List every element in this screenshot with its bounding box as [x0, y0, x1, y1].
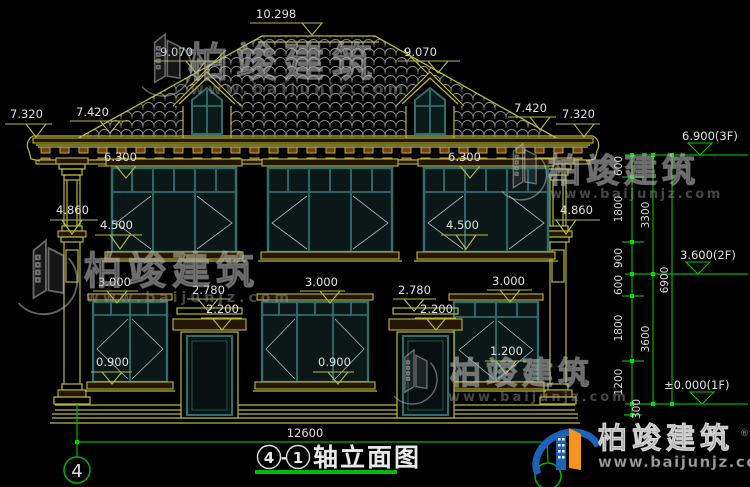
cad-canvas: 10.298 9.070 9.070 7.420 7.320 7.420 7.3… — [0, 0, 750, 487]
watermark-brand: 柏竣建筑 — [548, 151, 700, 190]
logo-tower-orange — [569, 428, 581, 470]
logo-site-text: www.baijunjz.com — [598, 453, 750, 471]
window-1f-center — [253, 294, 377, 391]
dim-sill-2: 0.900 — [318, 355, 351, 369]
window-2f-center — [258, 159, 402, 261]
watermark-brand: 柏竣建筑 — [84, 249, 260, 293]
dim-total-width: 12600 — [287, 426, 324, 440]
title-axis-end: 1 — [293, 449, 303, 467]
plinth — [50, 405, 580, 423]
watermark-top: 柏竣建筑 www.baijunjz.com — [142, 34, 407, 98]
dim-sill-1: 0.900 — [96, 355, 129, 369]
logo-swoosh — [536, 432, 598, 474]
watermark-left: 柏竣建筑 www.baijunjz.com — [19, 241, 294, 315]
dim-eave-in-right: 7.420 — [514, 101, 547, 115]
watermark-brand: 柏竣建筑 — [450, 356, 594, 392]
chain-600-b: 600 — [613, 275, 625, 295]
chain-3300: 3300 — [640, 202, 652, 229]
title-text: 轴立面图 — [313, 443, 421, 472]
logo-brand-text: 柏竣建筑 — [598, 421, 734, 455]
dim-eave-in-left: 7.420 — [76, 105, 109, 119]
level-2f: 3.600(2F) — [680, 248, 736, 262]
title-axis-start: 4 — [264, 449, 274, 467]
chain-6900: 6900 — [659, 267, 671, 294]
door-left — [173, 308, 246, 418]
dim-cap-left: 4.860 — [56, 203, 89, 217]
chain-900: 900 — [613, 248, 625, 268]
dim-eave-out-left: 7.320 — [10, 107, 43, 121]
dim-door-leaf-2: 2.200 — [420, 302, 453, 316]
chain-3600: 3600 — [640, 326, 652, 353]
dim-w1-top-2: 3.000 — [305, 275, 338, 289]
watermark-logo-icon — [142, 34, 191, 96]
level-1f: ±0.000(1F) — [664, 378, 729, 392]
logo-registered-mark: ® — [740, 429, 749, 439]
elevation-drawing: 10.298 9.070 9.070 7.420 7.320 7.420 7.3… — [0, 0, 750, 487]
dim-eave-out-right: 7.320 — [562, 107, 595, 121]
window-1f-left — [85, 294, 175, 391]
watermark-site: www.baijunjz.com — [550, 187, 723, 202]
axis-bubble-label: 4 — [71, 461, 82, 482]
chain-300: 300 — [631, 399, 643, 419]
dim-w1-top-3: 3.000 — [492, 274, 525, 288]
dim-w2-top-right: 6.300 — [448, 150, 481, 164]
title-underline — [255, 470, 397, 474]
dim-w2-bot-right: 4.500 — [446, 218, 479, 232]
dim-door-top-2: 2.780 — [398, 283, 431, 297]
dim-slope-right: 9.070 — [404, 45, 437, 59]
watermark-site: www.baijunjz.com — [86, 290, 293, 306]
chain-1800-b: 1800 — [613, 315, 625, 342]
dim-w2-top-left: 6.300 — [104, 150, 137, 164]
watermark-logo-icon — [19, 241, 78, 315]
brand-logo: 柏竣建筑 ® www.baijunjz.com — [536, 421, 750, 474]
watermark-site: www.baijunjz.com — [190, 80, 407, 98]
dim-cap-right: 4.860 — [560, 203, 593, 217]
watermark-site: www.baijunjz.com — [448, 390, 629, 405]
dim-ridge: 10.298 — [256, 7, 296, 21]
dim-w2-bot-left: 4.500 — [100, 218, 133, 232]
drawing-title: 4 - 1 轴立面图 — [255, 443, 421, 474]
level-3f: 6.900(3F) — [682, 129, 738, 143]
